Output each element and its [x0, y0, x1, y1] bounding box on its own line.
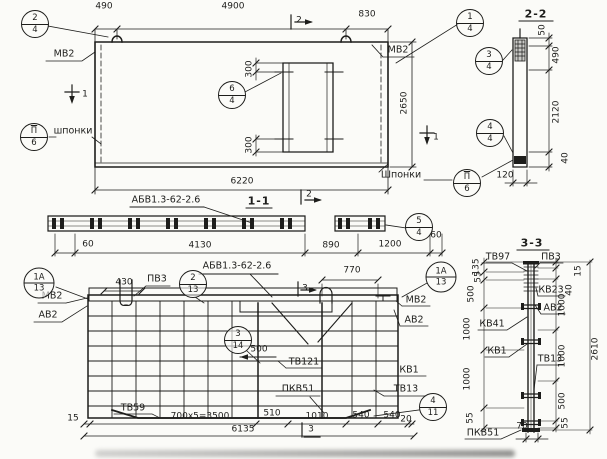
dim-re-1010: 1010	[306, 413, 329, 422]
dim-33-1000-right-b: 1000	[559, 345, 568, 368]
dim-33-1000-right-a: 1000	[559, 294, 568, 317]
callout-4-11: 4 11	[419, 393, 447, 421]
callout-1-4: 1 4	[456, 9, 484, 37]
callout-number: 4	[420, 394, 446, 408]
label-keys-right: Шпонки	[381, 170, 421, 180]
label-pv3-33: ПВ3	[541, 252, 561, 262]
dim-33-2610: 2610	[592, 338, 601, 361]
callout-number: 3	[476, 48, 502, 62]
label-mv2-re-right: МВ2	[406, 295, 427, 305]
title-reinforcement: АБВ1.3-62-2.6	[203, 261, 272, 271]
callout-4-4: 4 4	[476, 119, 504, 147]
callout-keys-6-right: П 6	[453, 169, 481, 197]
dim-22-40: 40	[562, 152, 571, 163]
dim-door-300-top: 300	[246, 60, 255, 77]
title-section-1-1: 1-1	[248, 196, 271, 207]
callout-sheet: 6	[454, 184, 480, 197]
label-pkv51: ПКВ51	[282, 384, 315, 394]
dim-33-1000-left-a: 1000	[464, 318, 473, 341]
label-pkv51-33: ПКВ51	[467, 428, 500, 438]
scan-smudge	[95, 450, 515, 457]
dim-11-4130: 4130	[189, 242, 212, 251]
cut-mark-2-top: 2	[296, 17, 302, 26]
label-mv2-plan-left: МВ2	[54, 49, 75, 59]
label-tv121: ТВ121	[289, 357, 319, 367]
dim-plan-490: 490	[95, 3, 112, 12]
dim-re-540a: 540	[352, 412, 369, 421]
label-kv1: КВ1	[399, 365, 418, 375]
dim-33-500-left: 500	[468, 285, 477, 302]
dim-22-490: 490	[553, 46, 562, 63]
dim-33-55-right: 55	[562, 417, 571, 428]
dim-re-500: 500	[250, 346, 267, 355]
label-keys-left: шпонки	[54, 126, 93, 136]
dim-33-55-bottom: 55	[467, 412, 476, 423]
dim-11-60-left: 60	[82, 241, 93, 250]
dim-re-510: 510	[263, 410, 280, 419]
callout-sheet: 4	[477, 134, 503, 147]
callout-number: 5	[406, 214, 432, 228]
label-pv3: ПВ3	[147, 274, 167, 284]
label-tv13: ТВ13	[394, 384, 418, 394]
title-section-2-2: 2-2	[525, 9, 548, 20]
dim-re-770: 770	[343, 267, 360, 276]
reinforcement-view-geometry	[34, 274, 430, 439]
drawing-sheet: 490 4900 830 2 300 300 2650 6220 МВ2 МВ2…	[0, 0, 607, 459]
callout-number: 3	[225, 327, 251, 341]
callout-2-13: 2 13	[179, 270, 207, 298]
callout-sheet: 4	[219, 96, 245, 109]
callout-1a-13-right: 1А 13	[426, 262, 457, 293]
callout-number: 4	[477, 120, 503, 134]
callout-number: 2	[22, 11, 48, 25]
callout-number: П	[454, 170, 480, 184]
cut-mark-3-top: 3	[302, 285, 308, 294]
dim-re-6135: 6135	[232, 426, 255, 435]
callout-number: 1А	[25, 269, 54, 284]
dim-33-15: 15	[575, 265, 584, 276]
cut-mark-3-bottom: 3	[308, 426, 314, 435]
callout-sheet: 4	[476, 62, 502, 75]
callout-sheet: 11	[420, 408, 446, 421]
section-3-3-geometry	[465, 250, 593, 442]
dim-22-2120: 2120	[553, 101, 562, 124]
dim-re-540b: 540	[383, 412, 400, 421]
callout-number: 2	[180, 271, 206, 285]
cut-mark-1-left: 1	[82, 91, 88, 100]
dim-plan-6220: 6220	[231, 178, 254, 187]
cut-mark-2-bottom: 2	[306, 191, 312, 200]
dim-22-120: 120	[496, 172, 513, 181]
callout-sheet: 13	[427, 278, 456, 292]
label-mv2-plan-right: МВ2	[388, 45, 409, 55]
callout-sheet: 4	[22, 25, 48, 38]
callout-sheet: 14	[225, 341, 251, 354]
callout-number: 6	[219, 82, 245, 96]
callout-number: 1	[457, 10, 483, 24]
callout-3-4: 3 4	[475, 47, 503, 75]
callout-keys-6-left: П 6	[20, 123, 48, 151]
dim-33-55-top: 55	[475, 271, 484, 282]
cut-mark-1-right: 1	[433, 134, 439, 143]
callout-3-14: 3 14	[224, 326, 252, 354]
dim-plan-2650: 2650	[401, 92, 410, 115]
callout-number: 1А	[427, 263, 456, 278]
dim-11-890: 890	[322, 242, 339, 251]
title-section-3-3: 3-3	[521, 238, 544, 249]
dim-re-15: 15	[67, 415, 78, 424]
dim-33-70: 70	[516, 423, 527, 432]
callout-2-4: 2 4	[21, 10, 49, 38]
dim-11-1200: 1200	[379, 241, 402, 250]
label-tv97: ТВ97	[486, 252, 510, 262]
callout-sheet: 13	[180, 285, 206, 298]
dim-33-1000-left-b: 1000	[464, 368, 473, 391]
callout-5-4: 5 4	[405, 213, 433, 241]
dim-door-300-bottom: 300	[246, 136, 255, 153]
callout-sheet: 13	[25, 284, 54, 298]
callout-sheet: 6	[21, 138, 47, 151]
callout-sheet: 4	[457, 24, 483, 37]
dim-re-pitch: 700х5=3500	[171, 413, 230, 422]
callout-sheet: 4	[406, 228, 432, 241]
label-kv41: КВ41	[479, 319, 504, 329]
label-av2-re-right: АВ2	[404, 315, 423, 325]
dim-plan-830: 830	[358, 11, 375, 20]
dim-re-430: 430	[115, 279, 132, 288]
plan-view-geometry	[46, 15, 513, 194]
callout-1a-13-left: 1А 13	[24, 268, 55, 299]
callout-6-4: 6 4	[218, 81, 246, 109]
dim-re-20: 20	[400, 416, 411, 425]
label-kv1-33: КВ1	[487, 346, 506, 356]
label-av2-re-left: АВ2	[38, 310, 57, 320]
label-tv59: ТВ59	[121, 403, 145, 413]
dim-33-500-right: 500	[559, 392, 568, 409]
dim-22-50: 50	[539, 24, 548, 35]
dim-plan-4900: 4900	[222, 3, 245, 12]
callout-number: П	[21, 124, 47, 138]
label-mark-1-1: АБВ1.3-62-2.6	[132, 195, 201, 205]
